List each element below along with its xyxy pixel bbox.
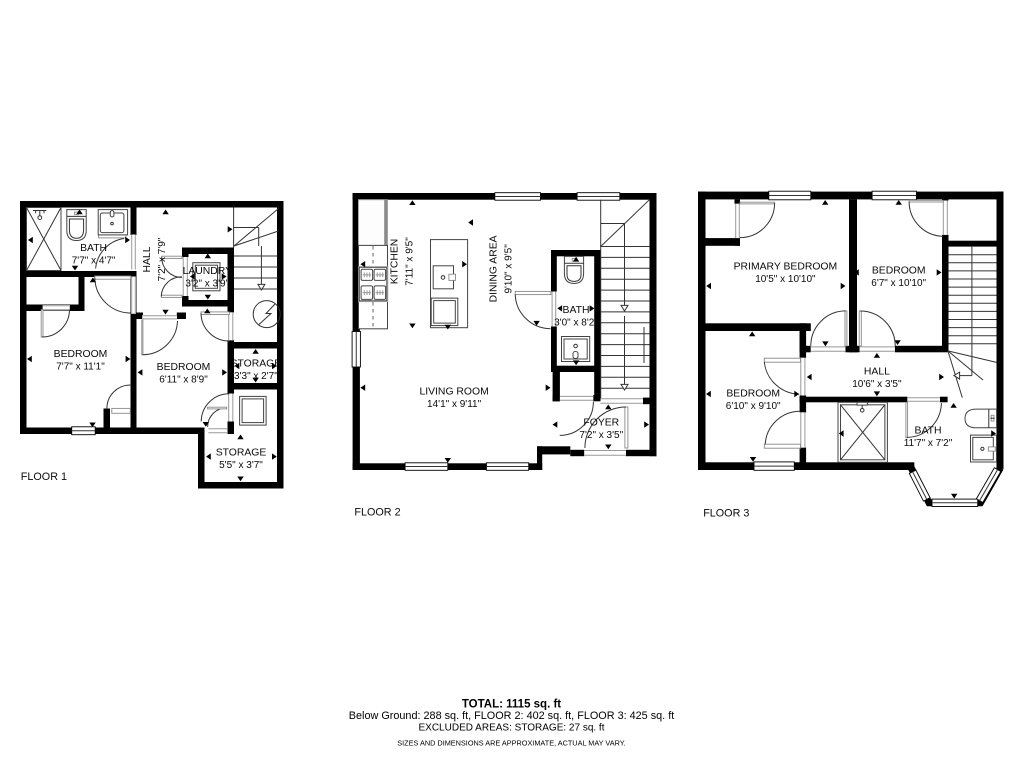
svg-text:HALL: HALL <box>864 367 890 378</box>
svg-text:10'6" x 3'5": 10'6" x 3'5" <box>852 379 902 390</box>
svg-text:BATH: BATH <box>80 243 107 254</box>
svg-text:DINING AREA: DINING AREA <box>488 235 499 302</box>
svg-text:EXCLUDED AREAS: STORAGE: 27 sq: EXCLUDED AREAS: STORAGE: 27 sq. ft <box>419 723 605 734</box>
svg-text:3'0" x 8'2": 3'0" x 8'2" <box>554 317 598 328</box>
svg-text:6'10" x 9'10": 6'10" x 9'10" <box>726 401 781 412</box>
svg-text:Below Ground: 288 sq. ft, FLOO: Below Ground: 288 sq. ft, FLOOR 2: 402 s… <box>349 710 674 722</box>
svg-text:10'5" x 10'10": 10'5" x 10'10" <box>755 274 816 285</box>
svg-text:PRIMARY BEDROOM: PRIMARY BEDROOM <box>734 262 838 273</box>
svg-text:BEDROOM: BEDROOM <box>157 362 211 373</box>
svg-text:3'3" x 2'7": 3'3" x 2'7" <box>234 371 278 382</box>
svg-text:STORAGE: STORAGE <box>231 359 282 370</box>
svg-text:6'11" x 8'9": 6'11" x 8'9" <box>159 374 208 385</box>
svg-text:BATH: BATH <box>563 305 590 316</box>
svg-text:HALL: HALL <box>142 246 153 272</box>
svg-text:7'11" x 9'5": 7'11" x 9'5" <box>404 237 415 286</box>
svg-text:TOTAL: 1115 sq. ft: TOTAL: 1115 sq. ft <box>462 698 561 710</box>
svg-text:FLOOR 2: FLOOR 2 <box>354 507 400 519</box>
svg-text:7'2" x 3'5": 7'2" x 3'5" <box>579 430 623 441</box>
svg-text:SIZES AND DIMENSIONS ARE APPRO: SIZES AND DIMENSIONS ARE APPROXIMATE, AC… <box>397 738 625 747</box>
svg-text:LAUNDRY: LAUNDRY <box>183 266 233 277</box>
svg-text:BEDROOM: BEDROOM <box>872 266 926 277</box>
svg-text:STORAGE: STORAGE <box>216 448 267 459</box>
svg-text:BATH: BATH <box>915 426 942 437</box>
svg-text:6'7" x 10'10": 6'7" x 10'10" <box>871 278 926 289</box>
svg-text:5'5" x 3'7": 5'5" x 3'7" <box>219 460 263 471</box>
svg-text:BEDROOM: BEDROOM <box>54 349 108 360</box>
svg-text:7'7" x 11'1": 7'7" x 11'1" <box>56 361 105 372</box>
svg-text:11'7" x 7'2": 11'7" x 7'2" <box>904 438 953 449</box>
svg-text:KITCHEN: KITCHEN <box>389 239 400 285</box>
svg-text:FLOOR 1: FLOOR 1 <box>21 471 67 483</box>
svg-text:3'2" x 3'9": 3'2" x 3'9" <box>185 278 229 289</box>
svg-text:LIVING ROOM: LIVING ROOM <box>419 387 488 398</box>
svg-text:BEDROOM: BEDROOM <box>726 389 780 400</box>
svg-text:7'2" x 7'9": 7'2" x 7'9" <box>157 237 168 281</box>
svg-text:7'7" x 4'7": 7'7" x 4'7" <box>72 255 116 266</box>
svg-text:FOYER: FOYER <box>583 418 619 429</box>
svg-text:9'10" x 9'5": 9'10" x 9'5" <box>503 244 514 294</box>
svg-text:FLOOR 3: FLOOR 3 <box>703 508 749 520</box>
svg-text:14'1" x 9'11": 14'1" x 9'11" <box>427 399 482 410</box>
